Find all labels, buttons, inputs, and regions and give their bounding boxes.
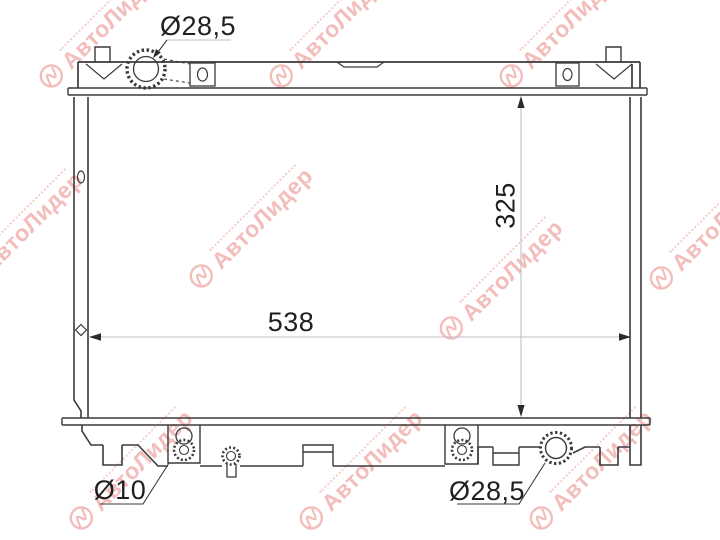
dimension-arrows [89,49,631,417]
outlet-pipe [541,433,572,464]
filler-neck [127,50,190,88]
side-channels [74,97,641,418]
top-mount-holes [190,63,579,86]
channel-hole [78,171,85,183]
top-pin-left [95,47,110,62]
bottom-right-end [630,425,641,465]
bottom-bracket-right [493,447,519,465]
v-notch-left [86,64,122,79]
dimension-lines [95,40,625,413]
radiator-diagram-page: АвтоЛидерАвтоЛидерАвтоЛидерАвтоЛидерАвто… [0,0,720,540]
bottom-bracket-mid [303,445,333,466]
top-pin-right [606,47,621,62]
channel-clip [76,325,87,336]
mount-leg-right [600,447,618,465]
drain-plug [174,428,194,460]
radiator-technical-drawing [0,0,720,540]
v-notch-right [596,64,632,79]
lower-fitting [452,428,472,460]
drain-cock [223,448,240,478]
bottom-tank [62,418,650,466]
